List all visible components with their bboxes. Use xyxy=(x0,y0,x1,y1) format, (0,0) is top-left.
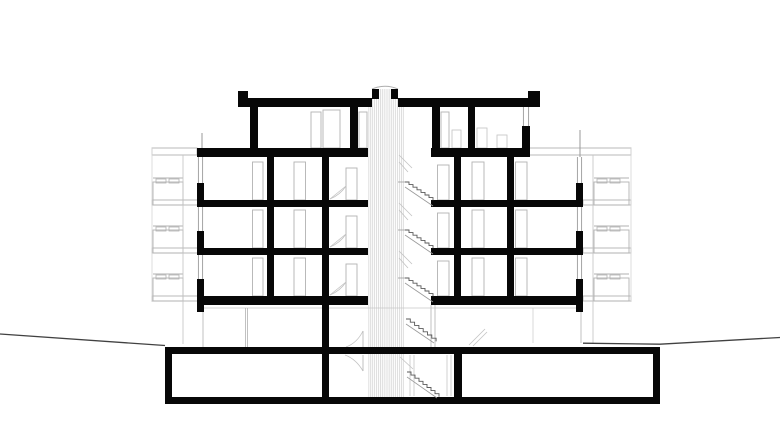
penthouse-glass-left-2 xyxy=(323,110,340,148)
roof-parapet-right xyxy=(528,91,540,107)
balcony-panel-right-2 xyxy=(594,230,629,253)
slab-penthouse-right xyxy=(431,148,522,157)
balcony-slab-left-2 xyxy=(152,248,198,253)
slab-penthouse-left xyxy=(197,148,368,157)
door-right-room2-f1 xyxy=(516,258,528,296)
door-right-room2-f2 xyxy=(516,210,528,248)
slab-f3-left xyxy=(197,200,368,207)
door-swing-leaf-f3 xyxy=(330,186,346,199)
balcony-panel-left-3 xyxy=(153,278,183,301)
slab-downstand-left xyxy=(197,305,204,312)
basement-ceiling xyxy=(165,347,660,354)
balcony-slab-right-1 xyxy=(583,200,631,205)
overrun-wall-left xyxy=(372,89,379,99)
slab-f1-right xyxy=(431,296,583,305)
door-corridor-f3 xyxy=(346,168,357,200)
stair-flight-f1 xyxy=(405,278,433,296)
groundfloor-door-swing-left xyxy=(346,331,363,347)
penthouse-door-right-core xyxy=(441,112,449,148)
balcony-slab-right-3 xyxy=(583,296,631,301)
penthouse-wall-right-interior xyxy=(468,98,475,157)
basement-wall-right xyxy=(653,347,660,404)
door-right-room1-f3 xyxy=(472,162,484,200)
overrun-wall-right xyxy=(391,89,398,99)
stair-flight-basement xyxy=(407,372,439,397)
door-left-room2-f3 xyxy=(294,162,306,200)
slab-downstand-right xyxy=(576,305,583,312)
balcony-slab-left-1 xyxy=(152,200,198,205)
stair-flight-f2 xyxy=(405,230,433,248)
door-corridor-f2 xyxy=(346,216,357,248)
section-svg xyxy=(0,0,780,423)
balcony-roof-slab-right xyxy=(522,148,631,155)
door-left-room2-f1 xyxy=(294,258,306,296)
balcony-slab-right-2 xyxy=(583,248,631,253)
groundfloor-door-swing-right-1 xyxy=(469,329,485,345)
balcony-panel-right-1 xyxy=(594,182,629,205)
penthouse-door-left-core xyxy=(359,112,367,148)
stair-stringer-ground xyxy=(406,324,434,343)
penthouse-wall-left-outer xyxy=(250,98,258,157)
penthouse-fixture-right-2 xyxy=(477,128,487,148)
door-swing-leaf-f1 xyxy=(330,282,346,295)
door-corridor-f1 xyxy=(346,264,357,296)
penthouse-wall-right-outer xyxy=(522,126,530,157)
basement-door-swing xyxy=(345,355,363,371)
door-left-room1-f3 xyxy=(253,162,264,200)
balcony-panel-right-3 xyxy=(594,278,629,301)
interior-wall-right xyxy=(507,157,514,296)
overrun-roof-arc xyxy=(372,86,398,89)
parapet-stub-left-f1 xyxy=(197,279,204,296)
stair-flight-ground xyxy=(406,319,436,341)
stair-stringer-basement xyxy=(407,377,437,398)
parapet-stub-right-f3 xyxy=(576,183,583,200)
penthouse-glass-left-1 xyxy=(311,112,321,148)
balcony-panel-left-2 xyxy=(153,230,183,253)
door-swing-leaf-f2 xyxy=(330,234,346,247)
basement-wall-left xyxy=(165,347,172,404)
door-right-room1-f1 xyxy=(472,258,484,296)
basement-wall-mid-1 xyxy=(322,354,329,397)
door-left-room2-f2 xyxy=(294,210,306,248)
door-left-room1-f2 xyxy=(253,210,264,248)
door-entry-f2 xyxy=(438,213,450,248)
door-right-room1-f2 xyxy=(472,210,484,248)
core-wall-left xyxy=(322,148,329,354)
core-wall-right xyxy=(454,148,461,305)
door-entry-f3 xyxy=(438,165,450,200)
parapet-stub-left-f3 xyxy=(197,183,204,200)
penthouse-fixture-right-1 xyxy=(452,130,461,148)
roof-parapet-left xyxy=(238,91,248,107)
penthouse-wall-left-core xyxy=(350,98,358,157)
basement-wall-mid-2 xyxy=(454,354,462,397)
stair-flight-f3 xyxy=(405,182,433,200)
elevator-overrun-hatch xyxy=(379,89,391,99)
door-right-room2-f3 xyxy=(516,162,528,200)
basement-floor xyxy=(165,397,660,404)
ground-line-left xyxy=(0,334,165,346)
door-entry-f1 xyxy=(438,261,450,296)
building-section-drawing xyxy=(0,0,780,423)
ground-line-right xyxy=(583,338,780,345)
parapet-stub-right-f1 xyxy=(576,279,583,296)
balcony-panel-left-1 xyxy=(153,182,183,205)
balcony-slab-left-3 xyxy=(152,296,198,301)
slab-f1-left xyxy=(197,296,368,305)
balcony-roof-slab-left xyxy=(152,148,197,155)
parapet-stub-right-f2 xyxy=(576,231,583,248)
penthouse-wall-right-core xyxy=(432,98,440,157)
penthouse-fixture-right-3 xyxy=(497,135,507,148)
interior-wall-left xyxy=(267,157,274,296)
slab-f2-left xyxy=(197,248,368,255)
door-left-room1-f1 xyxy=(253,258,264,296)
parapet-stub-left-f2 xyxy=(197,231,204,248)
